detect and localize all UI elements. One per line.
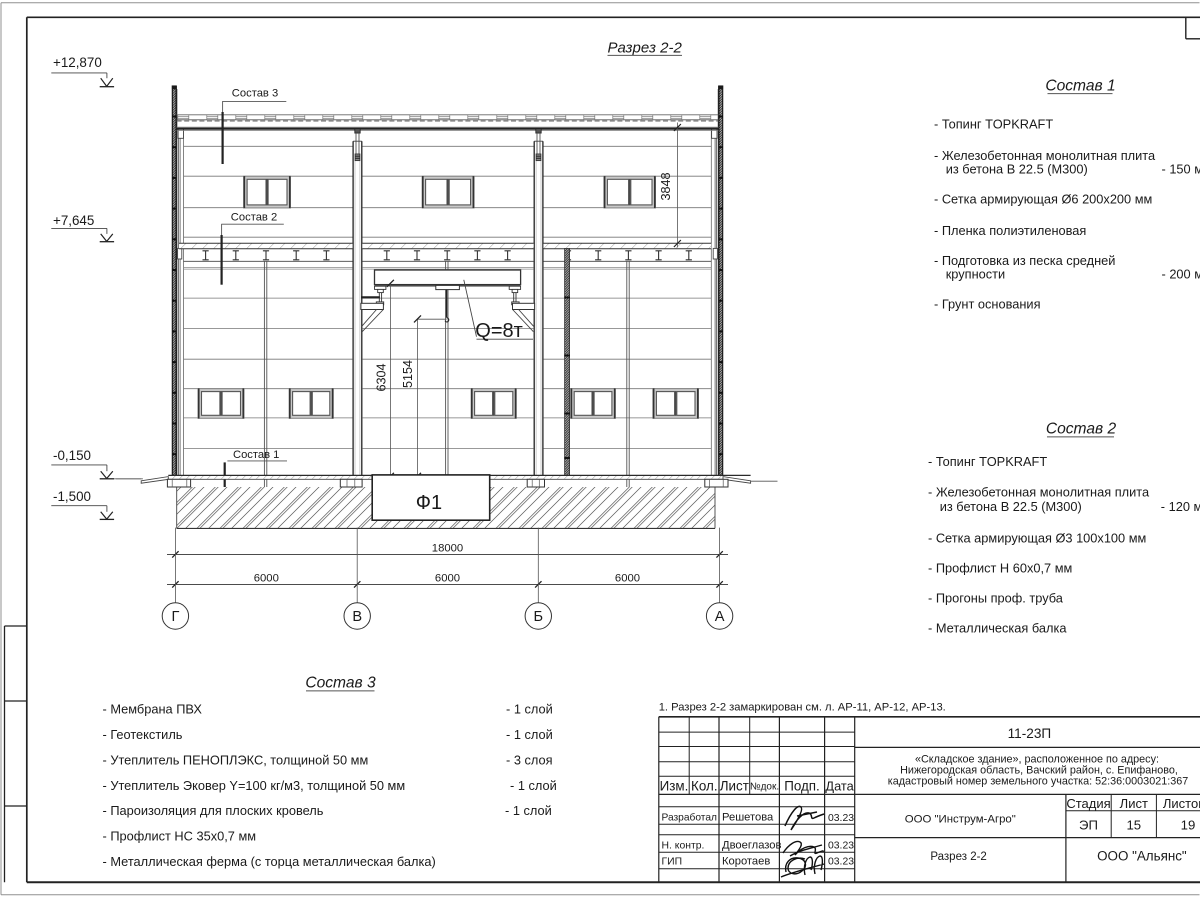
svg-text:- 1 слой: - 1 слой — [506, 727, 553, 742]
svg-text:№док.: №док. — [750, 782, 779, 793]
svg-text:+7,645: +7,645 — [53, 213, 94, 228]
svg-text:Состав 2: Состав 2 — [231, 211, 277, 223]
svg-text:6000: 6000 — [254, 573, 279, 585]
svg-text:Двоеглазов: Двоеглазов — [722, 840, 782, 852]
svg-text:Ф1: Ф1 — [416, 492, 442, 514]
svg-text:- Сетка армирующая Ø3 100х100: - Сетка армирующая Ø3 100х100 мм — [928, 530, 1146, 545]
svg-text:крупности: крупности — [946, 267, 1006, 282]
svg-text:Изм.: Изм. — [660, 779, 689, 794]
svg-text:- Мембрана ПВХ: - Мембрана ПВХ — [103, 702, 203, 717]
svg-text:- Грунт основания: - Грунт основания — [934, 296, 1041, 311]
svg-text:- Топинг TOPKRAFT: - Топинг TOPKRAFT — [928, 454, 1047, 469]
svg-text:Решетова: Решетова — [722, 812, 774, 824]
svg-text:- Прогоны проф. труба: - Прогоны проф. труба — [928, 590, 1064, 605]
svg-text:6000: 6000 — [615, 573, 640, 585]
svg-text:03.23: 03.23 — [828, 813, 854, 824]
svg-text:А: А — [715, 609, 725, 625]
svg-text:03.23: 03.23 — [828, 857, 854, 868]
svg-text:Лист: Лист — [720, 779, 749, 794]
svg-text:- 1 слой: - 1 слой — [510, 778, 557, 793]
svg-text:- Топинг TOPKRAFT: - Топинг TOPKRAFT — [934, 116, 1053, 131]
svg-text:Состав 1: Состав 1 — [233, 449, 279, 461]
svg-text:Н. контр.: Н. контр. — [662, 841, 705, 852]
svg-text:Листов: Листов — [1163, 796, 1200, 811]
svg-text:19: 19 — [1181, 817, 1196, 832]
svg-text:Состав 3: Состав 3 — [232, 87, 278, 99]
svg-text:Подп.: Подп. — [784, 779, 820, 794]
svg-text:15: 15 — [1126, 817, 1141, 832]
svg-text:- Утеплитель Эковер Y=100 кг/м: - Утеплитель Эковер Y=100 кг/м3, толщино… — [103, 778, 406, 793]
svg-text:- 1 слой: - 1 слой — [506, 702, 553, 717]
svg-text:из бетона В 22.5 (М300): из бетона В 22.5 (М300) — [946, 161, 1088, 176]
svg-text:- Сетка армирующая Ø6 200х200: - Сетка армирующая Ø6 200х200 мм — [934, 191, 1152, 206]
svg-text:- Геотекстиль: - Геотекстиль — [103, 727, 183, 742]
svg-text:Стадия: Стадия — [1066, 796, 1110, 811]
svg-text:6000: 6000 — [435, 573, 460, 585]
svg-text:- Пароизоляция для плоских кро: - Пароизоляция для плоских кровель — [103, 803, 324, 818]
svg-text:- 120 мм: - 120 мм — [1161, 499, 1200, 514]
svg-text:Разрез 2-2: Разрез 2-2 — [930, 851, 986, 863]
svg-text:Лист: Лист — [1120, 796, 1148, 811]
svg-text:3848: 3848 — [659, 172, 673, 200]
svg-text:ГИП: ГИП — [662, 857, 683, 868]
svg-text:Разработал: Разработал — [662, 812, 718, 824]
svg-text:В: В — [352, 609, 362, 625]
svg-text:кадастровый номер земельного у: кадастровый номер земельного участка: 52… — [888, 776, 1188, 788]
svg-text:-0,150: -0,150 — [53, 448, 91, 463]
svg-text:ЭП: ЭП — [1079, 817, 1098, 832]
svg-text:Б: Б — [534, 609, 544, 625]
svg-text:- Металлическая балка: - Металлическая балка — [928, 621, 1067, 636]
svg-text:-1,500: -1,500 — [53, 489, 91, 504]
svg-text:6304: 6304 — [375, 363, 389, 391]
svg-text:ООО "Альянс": ООО "Альянс" — [1097, 848, 1187, 863]
svg-text:03.23: 03.23 — [828, 841, 854, 852]
svg-text:- 3 слоя: - 3 слоя — [506, 752, 553, 767]
svg-text:18000: 18000 — [432, 543, 463, 555]
svg-text:- Железобетонная монолитная п: - Железобетонная монолитная плита — [928, 485, 1150, 500]
svg-text:- 150 мм: - 150 мм — [1162, 161, 1200, 176]
svg-text:1. Разрез 2-2 замаркирован см.: 1. Разрез 2-2 замаркирован см. л. АР-11,… — [659, 702, 946, 714]
svg-text:- Утеплитель ПЕНОПЛЭКС, толщин: - Утеплитель ПЕНОПЛЭКС, толщиной 50 мм — [103, 752, 369, 767]
svg-text:Q=8т: Q=8т — [475, 320, 523, 342]
svg-text:ООО "Инструм-Агро": ООО "Инструм-Агро" — [905, 814, 1016, 826]
svg-text:Кол.: Кол. — [691, 779, 718, 794]
svg-text:- Профлист Н 60х0,7 мм: - Профлист Н 60х0,7 мм — [928, 561, 1072, 576]
svg-text:5154: 5154 — [401, 360, 415, 388]
svg-text:11-23П: 11-23П — [1008, 726, 1052, 741]
svg-text:- Металлическая ферма (с торца: - Металлическая ферма (с торца металличе… — [103, 854, 436, 869]
svg-text:- Профлист НС 35х0,7 мм: - Профлист НС 35х0,7 мм — [103, 828, 257, 843]
svg-text:Состав 2: Состав 2 — [1046, 420, 1117, 437]
svg-text:из бетона В 22.5 (М300): из бетона В 22.5 (М300) — [940, 499, 1082, 514]
svg-text:Коротаев: Коротаев — [722, 856, 770, 868]
svg-text:+12,870: +12,870 — [53, 55, 102, 70]
svg-text:Состав 3: Состав 3 — [305, 674, 376, 691]
svg-text:Г: Г — [171, 609, 179, 625]
svg-text:Дата: Дата — [825, 779, 854, 794]
svg-text:- 200 мм: - 200 мм — [1162, 267, 1200, 282]
svg-text:- Пленка полиэтиленовая: - Пленка полиэтиленовая — [934, 223, 1086, 238]
svg-text:Состав 1: Состав 1 — [1045, 78, 1115, 95]
svg-text:- 1 слой: - 1 слой — [505, 803, 552, 818]
svg-text:Разрез 2-2: Разрез 2-2 — [608, 40, 683, 57]
